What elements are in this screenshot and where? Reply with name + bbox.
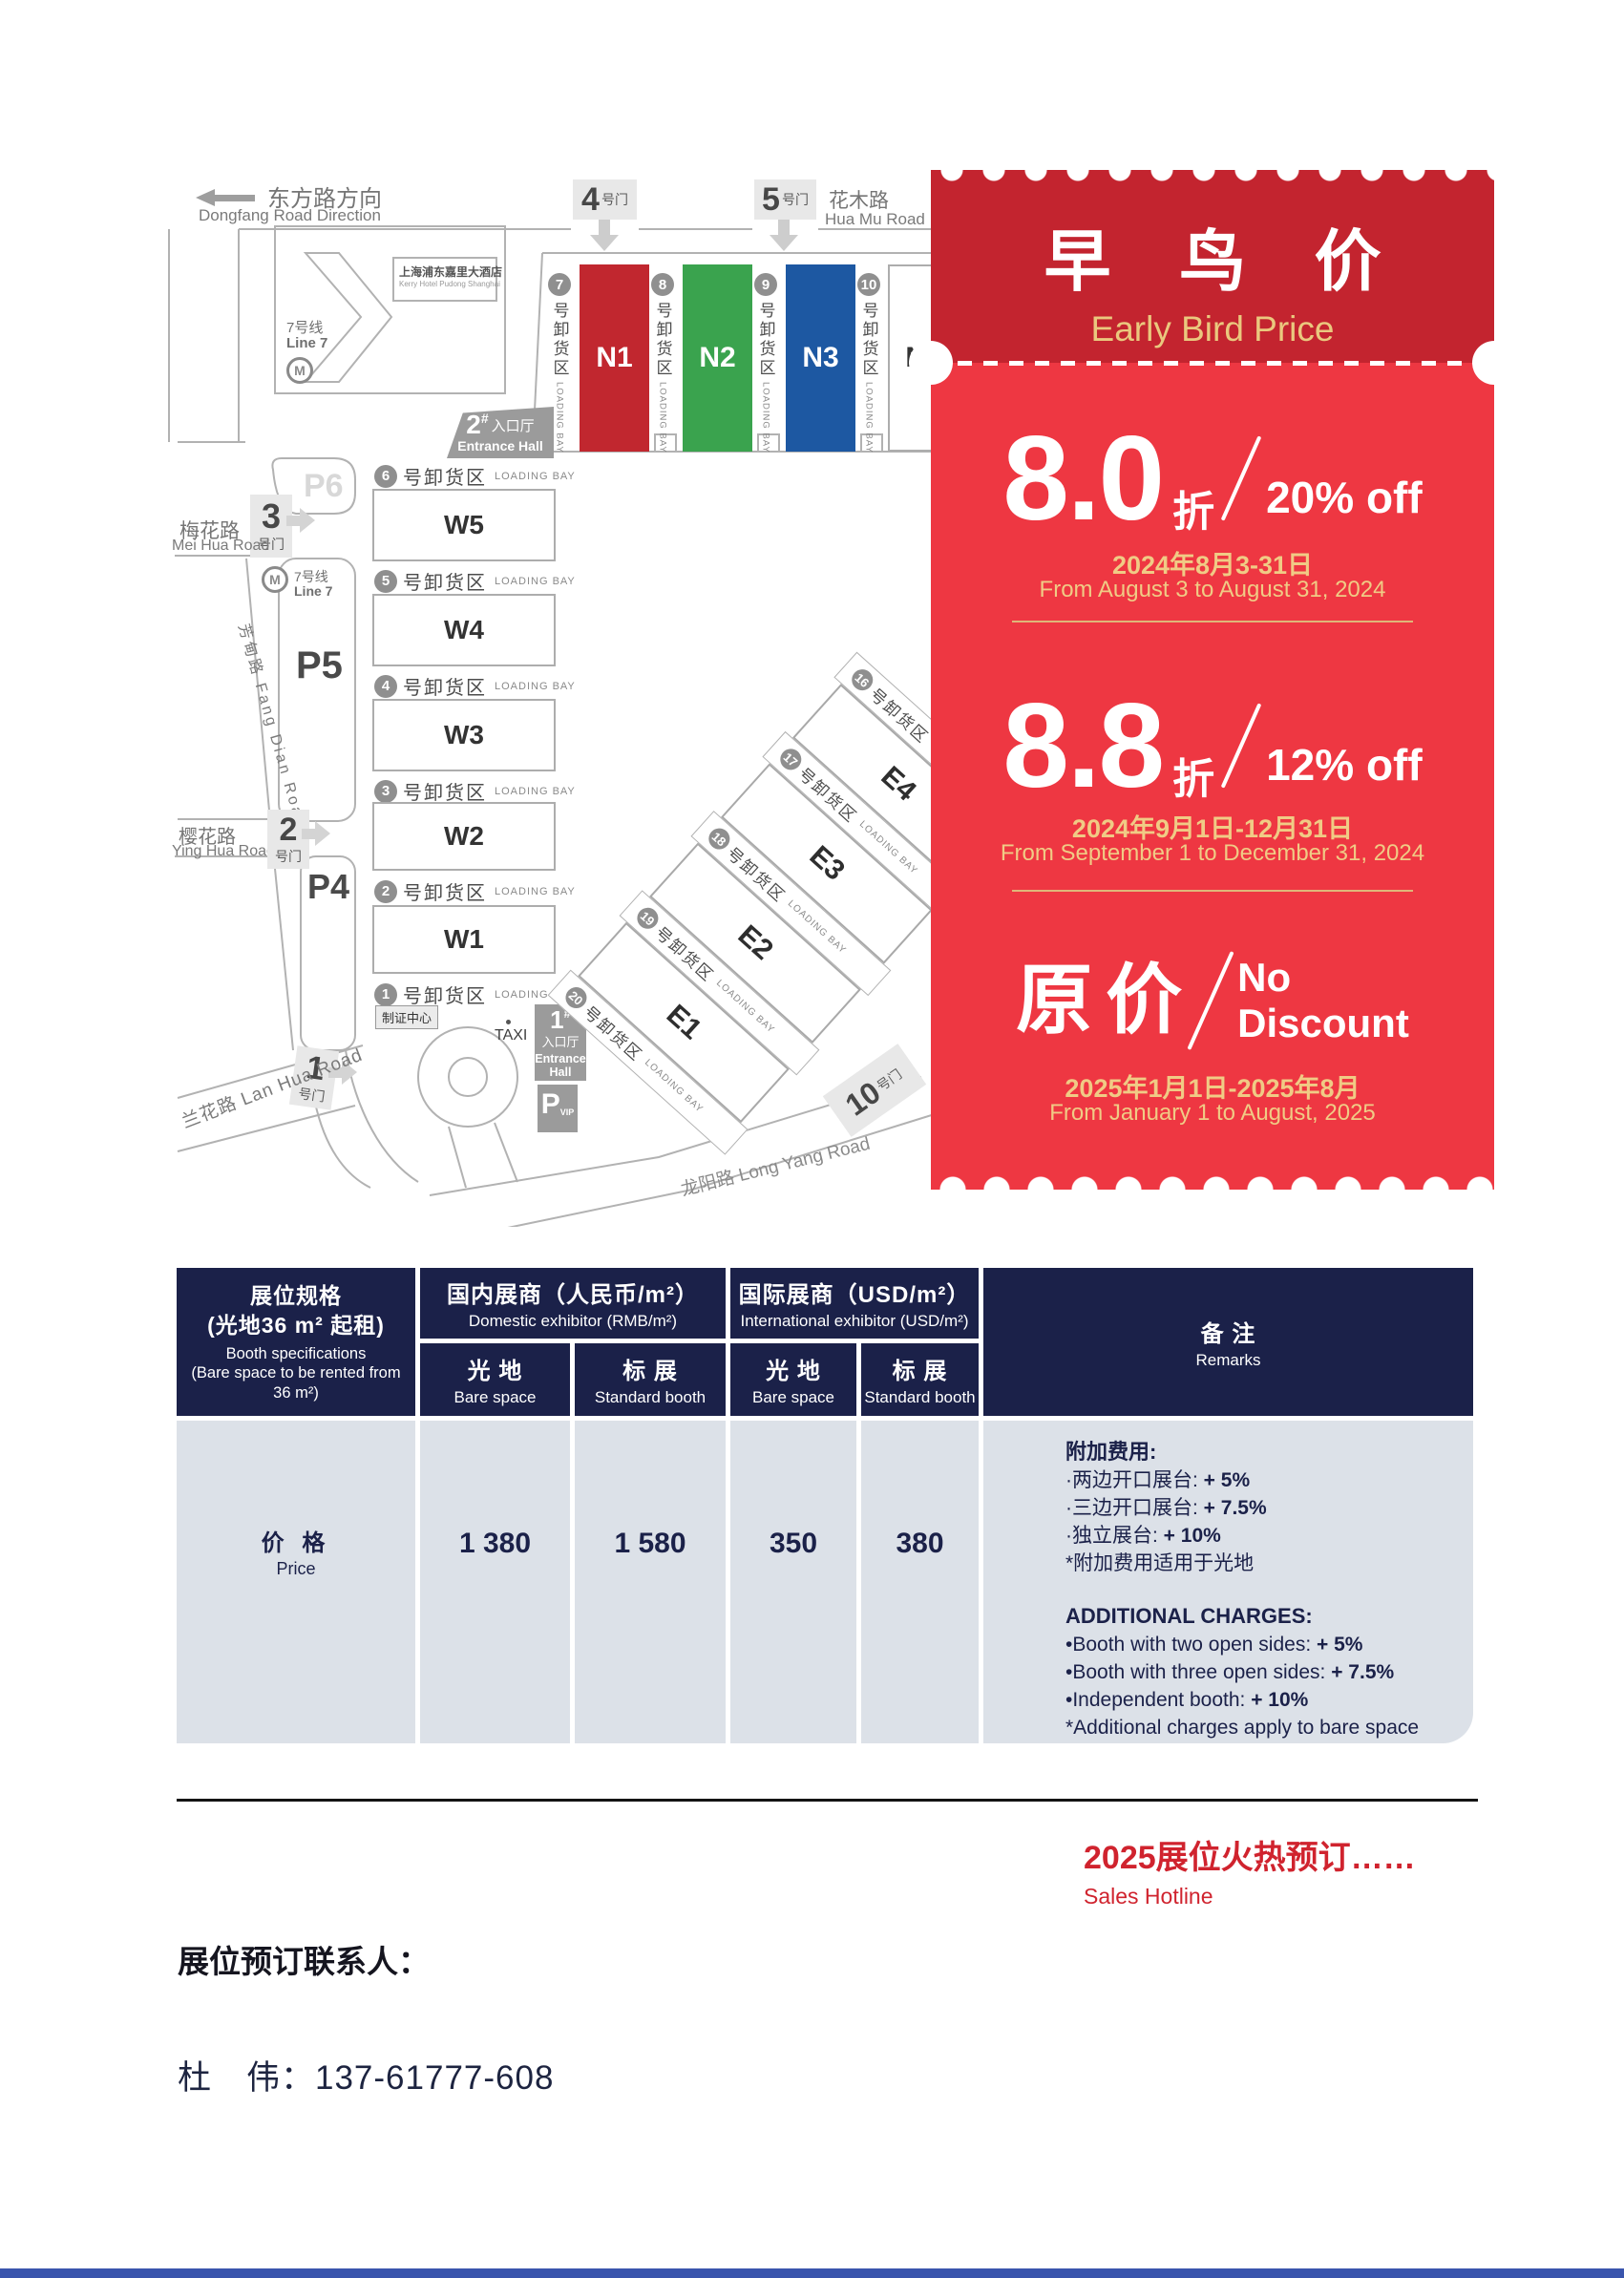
tier-3-date-en: From January 1 to August, 2025 <box>931 1100 1494 1127</box>
slash-icon <box>1221 435 1262 520</box>
road-dongfang-en: Dongfang Road Direction <box>199 206 381 225</box>
tier-1-date-en: From August 3 to August 31, 2024 <box>931 577 1494 603</box>
header-dom-standard: 标 展 Standard booth <box>575 1343 726 1416</box>
hall-w2: W2 <box>372 802 556 871</box>
gate-5-arrow-icon <box>770 220 798 251</box>
line7-cn: 7号线 <box>286 317 323 337</box>
header-remarks: 备 注 Remarks <box>983 1268 1473 1416</box>
loading-bay-3: 3号卸货区LOADING BAY <box>374 777 576 805</box>
tier-3-row: 原价 NoDiscount <box>931 934 1494 1067</box>
gate-2-arrow-icon <box>302 821 330 846</box>
road-yinghua-en: Ying Hua Road <box>172 843 275 860</box>
early-bird-ticket: 早 鸟 价 Early Bird Price 8.0 折 20% off 202… <box>931 170 1494 1190</box>
parking-p4: P4 <box>307 867 349 907</box>
hall-n3: N3 <box>786 264 855 452</box>
gate-5: 5号门 <box>754 179 816 220</box>
ticket-title-cn: 早 鸟 价 <box>931 208 1494 305</box>
road-huamu-en: Hua Mu Road <box>825 210 925 229</box>
slash-icon <box>1221 703 1262 788</box>
header-intl-bare: 光 地 Bare space <box>730 1343 856 1416</box>
tier-divider-1 <box>1012 621 1413 622</box>
price-label-cell: 价 格 Price <box>177 1421 415 1743</box>
price-dom-standard: 1 580 <box>575 1421 726 1743</box>
line7-en: Line 7 <box>286 335 327 351</box>
divider-rule <box>177 1799 1478 1802</box>
dongfang-arrow-icon <box>196 189 255 206</box>
sales-hotline-block: 2025展位火热预订…… Sales Hotline <box>1084 1831 1485 1909</box>
header-domestic: 国内展商（人民币/m²） Domestic exhibitor (RMB/m²) <box>420 1268 726 1339</box>
contact-label: 展位预订联系人： <box>178 1936 430 1982</box>
flyer-page: 东方路方向 Dongfang Road Direction 花木路 Hua Mu… <box>0 0 1624 2278</box>
hall-w3: W3 <box>372 699 556 771</box>
tier-2-date-en: From September 1 to December 31, 2024 <box>931 840 1494 867</box>
parking-p6: P6 <box>304 468 344 505</box>
entrance-hall-2: 2#入口厅 Entrance Hall <box>447 407 554 458</box>
header-dom-bare: 光 地 Bare space <box>420 1343 570 1416</box>
loading-bay-6: 6号卸货区LOADING BAY <box>374 462 576 490</box>
gate-4: 4号门 <box>573 179 637 220</box>
hall-n2: N2 <box>683 264 752 452</box>
header-booth-spec: 展位规格 (光地36 m² 起租) Booth specifications (… <box>177 1268 415 1416</box>
price-intl-bare: 350 <box>730 1421 856 1743</box>
hall-w1: W1 <box>372 905 556 974</box>
loading-bay-10: 10 号卸货区 LOADING BAY <box>856 273 881 453</box>
tier-divider-2 <box>1012 890 1413 892</box>
line7-2-en: Line 7 <box>294 583 332 599</box>
badge-center: 制证中心 <box>375 1005 438 1029</box>
header-international: 国际展商（USD/m²） International exhibitor (US… <box>730 1268 979 1339</box>
metro-icon: M <box>286 357 313 384</box>
header-intl-standard: 标 展 Standard booth <box>861 1343 979 1416</box>
hall-n1: N1 <box>580 264 649 452</box>
loading-bay-5: 5号卸货区LOADING BAY <box>374 567 576 595</box>
remarks-cell: 附加费用: ·两边开口展台: + 5% ·三边开口展台: + 7.5% ·独立展… <box>983 1421 1473 1743</box>
loading-bay-9: 9 号卸货区 LOADING BAY <box>753 273 778 453</box>
hotel-name-cn: 上海浦东嘉里大酒店 <box>399 264 502 280</box>
hotline-cn: 2025展位火热预订…… <box>1084 1831 1485 1878</box>
parking-vip: PVIP <box>538 1085 578 1132</box>
price-intl-standard: 380 <box>861 1421 979 1743</box>
price-dom-bare: 1 380 <box>420 1421 570 1743</box>
loading-bay-2: 2号卸货区LOADING BAY <box>374 877 576 905</box>
hotline-en: Sales Hotline <box>1084 1884 1485 1909</box>
ticket-title-en: Early Bird Price <box>931 309 1494 349</box>
metro-icon-2: M <box>262 566 288 593</box>
ticket-scallop-bottom <box>931 1167 1494 1190</box>
taxi-label: TAXI <box>495 1027 527 1044</box>
taxi-dot <box>506 1020 511 1024</box>
road-meihua-en: Mei Hua Road <box>172 538 269 555</box>
gate-3-arrow-icon <box>286 508 315 533</box>
loading-bay-4: 4号卸货区LOADING BAY <box>374 672 576 700</box>
gate-4-arrow-icon <box>590 220 619 251</box>
contact-phone: 杜 伟：137-61777-608 <box>178 2051 554 2099</box>
tier-2-row: 8.8 折 12% off <box>931 674 1494 817</box>
tier-1-row: 8.0 折 20% off <box>931 407 1494 550</box>
price-table: 展位规格 (光地36 m² 起租) Booth specifications (… <box>177 1268 1473 1743</box>
parking-p5: P5 <box>296 644 343 687</box>
hotel-name-en: Kerry Hotel Pudong Shanghai <box>399 280 500 288</box>
ticket-tear-line <box>958 361 1467 366</box>
venue-map: 东方路方向 Dongfang Road Direction 花木路 Hua Mu… <box>143 143 983 1227</box>
hall-w5: W5 <box>372 489 556 561</box>
ticket-scallop-top <box>931 170 1494 191</box>
footer-blue-strip <box>0 2268 1624 2278</box>
hall-w4: W4 <box>372 594 556 666</box>
loading-bay-8: 8 号卸货区 LOADING BAY <box>650 273 675 453</box>
